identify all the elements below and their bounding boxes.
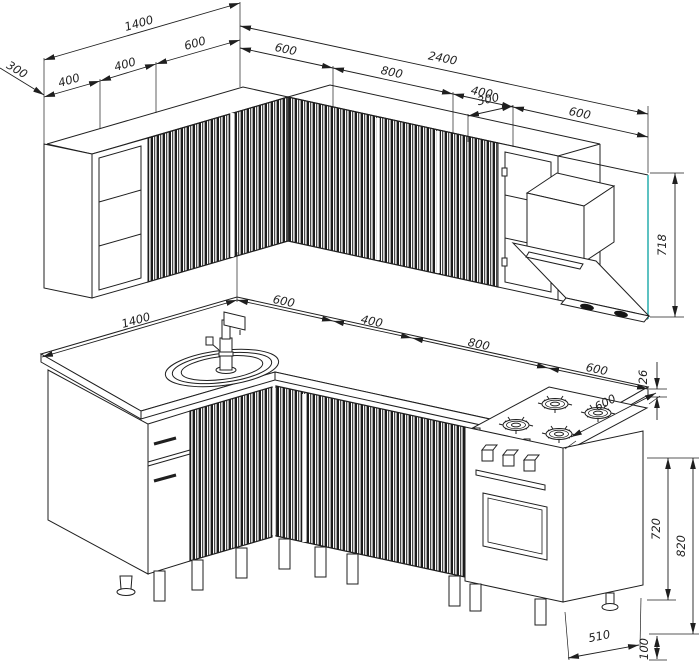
dim-worktop-height: 820 [674,458,693,634]
kitchen-drawing: 300 1400 600 400 400 2400 600 800 400 60… [0,0,699,670]
stove-side-panel [563,431,643,602]
base-cabinet-drawer-unit [148,411,190,574]
base-doors-left-run [190,387,272,561]
wall-cabinet-side-panel [44,144,92,298]
kitchen-drawing-canvas: 300 1400 600 400 400 2400 600 800 400 60… [0,0,699,670]
dim-leg-height: 100 [637,636,657,660]
dim-label: 26 [636,370,650,385]
dim-label: 510 [587,627,611,645]
dim-label: 820 [674,535,688,557]
dim-label: 720 [649,518,663,540]
stove-leg [470,584,481,611]
dim-upper-left-total: 1400 [44,3,240,60]
extension-line [565,612,569,660]
dim-label: 2400 [427,48,458,67]
cooker-hood [513,173,649,322]
adjustable-foot [117,576,135,596]
dim-label: 300 [4,58,30,81]
dim-label: 600 [274,40,298,58]
stove-adjustable-foot [602,593,618,611]
dim-label: 600 [568,104,592,122]
dim-label: 1400 [123,12,155,34]
dim-upper-cabinet-height: 718 [655,173,675,317]
lower-cabinets-view: 1400 600 400 800 600 600 26 720 820 [41,252,699,660]
upper-cabinets-view: 300 1400 600 400 400 2400 600 800 400 60… [0,2,684,322]
dim-upper-side-depth: 300 [0,58,44,95]
glass-door-frame-left [99,146,141,290]
hinge [502,168,507,176]
dim-label: 100 [637,638,651,660]
dim-label: 718 [655,234,669,256]
dim-upper-left-chain: 600 400 400 [44,33,240,97]
stove [465,387,647,625]
stove-leg [535,599,546,625]
hinge [502,258,507,266]
dim-stove-depth: 510 [568,627,639,658]
dim-base-cabinet-height: 720 [649,458,668,600]
wall-top-edge [558,156,648,175]
